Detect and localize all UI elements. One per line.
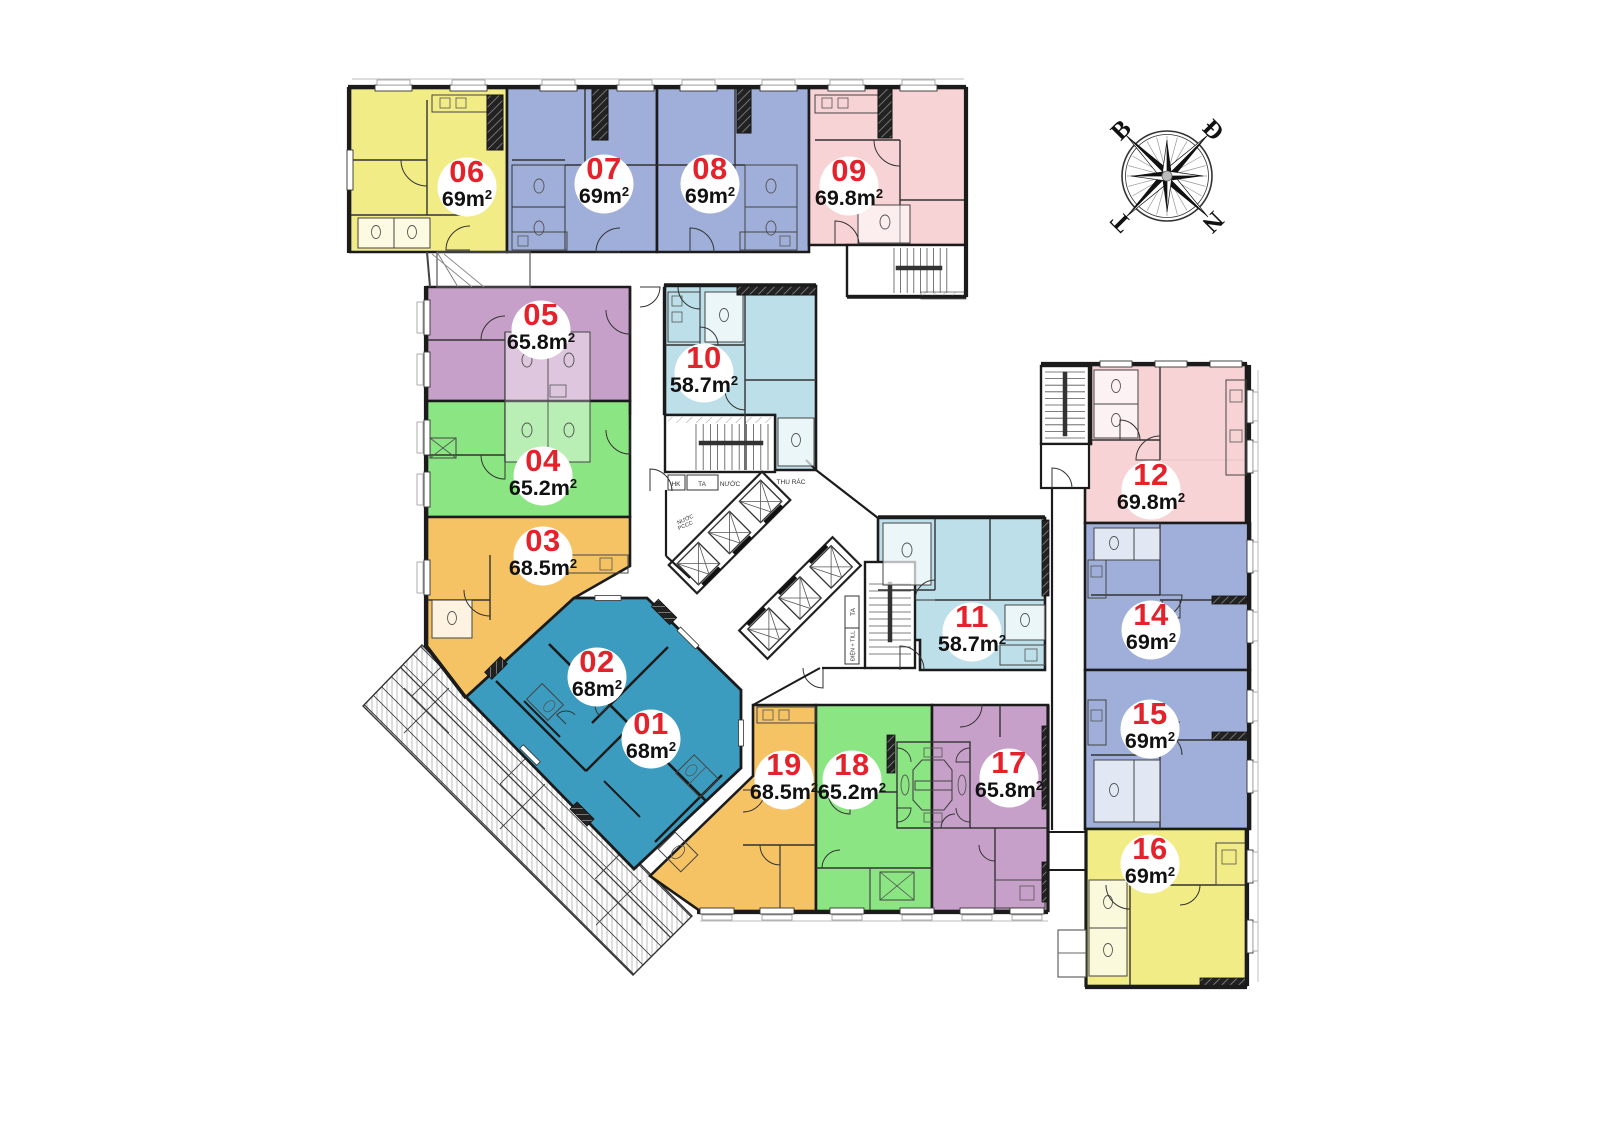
svg-text:69m2: 69m2 — [1125, 864, 1175, 888]
svg-text:06: 06 — [449, 154, 484, 189]
svg-text:69m2: 69m2 — [579, 184, 629, 208]
svg-text:17: 17 — [991, 745, 1026, 780]
svg-text:TA: TA — [850, 607, 857, 615]
svg-text:69.8m2: 69.8m2 — [815, 186, 883, 210]
svg-text:68.5m2: 68.5m2 — [750, 780, 818, 804]
svg-text:05: 05 — [523, 297, 558, 332]
svg-text:HK: HK — [671, 481, 681, 488]
svg-text:NƯỚC: NƯỚC — [720, 479, 741, 488]
svg-text:65.8m2: 65.8m2 — [975, 778, 1043, 802]
svg-text:68m2: 68m2 — [572, 677, 622, 701]
svg-text:16: 16 — [1132, 831, 1167, 866]
svg-text:68m2: 68m2 — [626, 739, 676, 763]
svg-text:01: 01 — [633, 706, 668, 741]
svg-text:11: 11 — [955, 599, 989, 634]
svg-text:69m2: 69m2 — [685, 184, 735, 208]
svg-text:03: 03 — [525, 523, 560, 558]
svg-text:10: 10 — [686, 340, 721, 375]
svg-text:02: 02 — [579, 644, 614, 679]
svg-text:19: 19 — [766, 747, 801, 782]
svg-text:69.8m2: 69.8m2 — [1117, 490, 1185, 514]
svg-text:68.5m2: 68.5m2 — [509, 556, 577, 580]
svg-text:69m2: 69m2 — [1125, 729, 1175, 753]
svg-text:04: 04 — [525, 443, 561, 478]
svg-text:07: 07 — [586, 151, 621, 186]
svg-text:15: 15 — [1132, 696, 1167, 731]
svg-text:69m2: 69m2 — [1126, 630, 1176, 654]
svg-text:ĐIỆN + TILL: ĐIỆN + TILL — [849, 631, 857, 661]
svg-text:TA: TA — [698, 481, 706, 488]
svg-text:58.7m2: 58.7m2 — [938, 632, 1006, 656]
svg-text:69m2: 69m2 — [442, 187, 492, 211]
svg-text:14: 14 — [1133, 597, 1169, 632]
svg-text:58.7m2: 58.7m2 — [670, 373, 738, 397]
svg-text:65.2m2: 65.2m2 — [509, 476, 577, 500]
svg-text:08: 08 — [692, 151, 727, 186]
svg-text:18: 18 — [834, 747, 869, 782]
svg-text:65.8m2: 65.8m2 — [507, 330, 575, 354]
svg-text:THU RÁC: THU RÁC — [777, 477, 806, 486]
svg-text:12: 12 — [1133, 457, 1168, 492]
svg-text:09: 09 — [831, 153, 866, 188]
svg-text:65.2m2: 65.2m2 — [818, 780, 886, 804]
